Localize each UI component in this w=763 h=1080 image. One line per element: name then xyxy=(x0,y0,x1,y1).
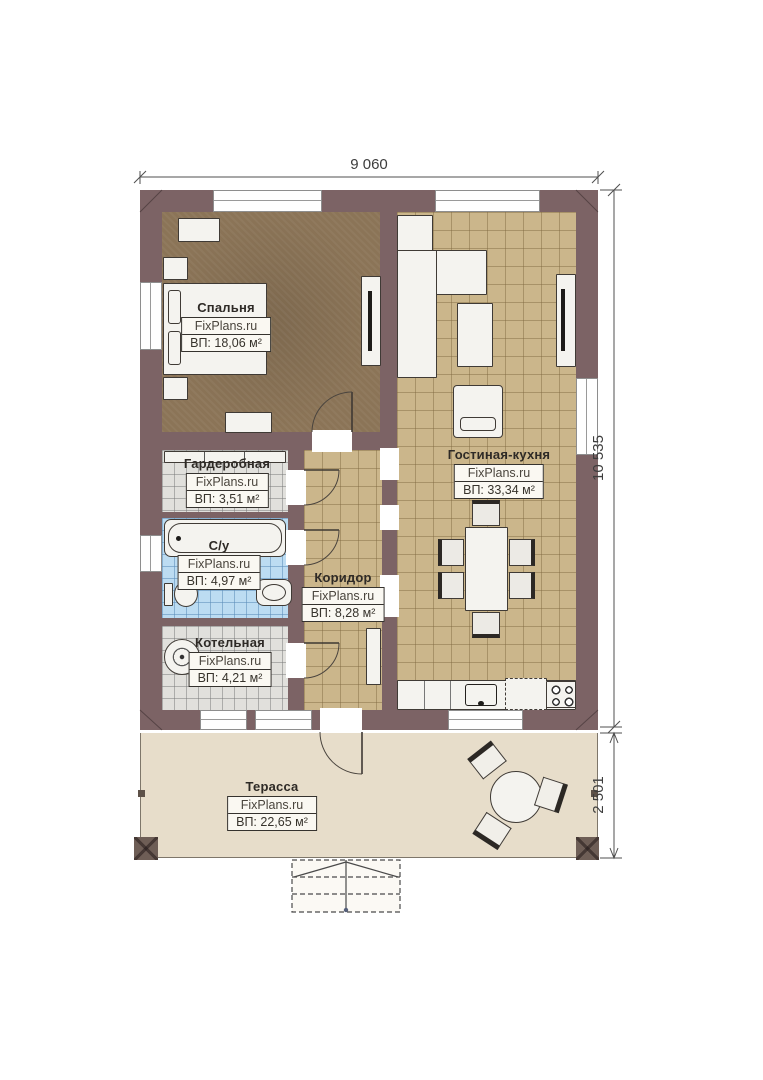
dim-extensions xyxy=(140,171,598,184)
toilet-tank xyxy=(164,583,173,606)
dim-ticks xyxy=(134,171,604,183)
coffee-table xyxy=(457,303,493,367)
label-box: FixPlans.ru ВП: 22,65 м² xyxy=(227,796,317,831)
room-area: ВП: 3,51 м² xyxy=(187,491,268,507)
dining-chair xyxy=(438,572,464,599)
room-name: Гардеробная xyxy=(184,456,270,471)
room-label-boiler: Котельная FixPlans.ru ВП: 4,21 м² xyxy=(189,635,272,687)
dining-table xyxy=(465,527,508,611)
terrace-table xyxy=(490,771,542,823)
brand-watermark: FixPlans.ru xyxy=(179,556,260,573)
room-name: Спальня xyxy=(181,300,271,315)
window-living-top xyxy=(435,190,540,212)
room-area: ВП: 4,21 м² xyxy=(190,670,271,686)
railing-post xyxy=(138,790,145,797)
pillow xyxy=(168,290,181,324)
dim-ticks xyxy=(608,184,620,733)
dimension-right xyxy=(600,184,622,733)
terrace-post-left xyxy=(134,837,158,860)
dresser xyxy=(225,412,272,433)
room-label-bathroom: С/у FixPlans.ru ВП: 4,97 м² xyxy=(178,538,261,590)
bedroom-cabinet xyxy=(178,218,220,242)
room-label-terrace: Терасса FixPlans.ru ВП: 22,65 м² xyxy=(227,779,317,831)
window-living-right xyxy=(576,378,598,455)
brand-watermark: FixPlans.ru xyxy=(455,465,543,482)
room-area: ВП: 18,06 м² xyxy=(182,335,270,351)
passage-living-2 xyxy=(380,505,399,530)
window-bottom-2 xyxy=(255,710,312,730)
terrace-steps xyxy=(292,860,400,912)
brand-watermark: FixPlans.ru xyxy=(303,588,384,605)
terrace-post-right xyxy=(576,837,599,860)
label-box: FixPlans.ru ВП: 33,34 м² xyxy=(454,464,544,499)
brand-watermark: FixPlans.ru xyxy=(182,318,270,335)
nightstand-top xyxy=(163,257,188,280)
dimension-terrace xyxy=(600,733,622,858)
steps-outline xyxy=(292,860,400,912)
dining-chair xyxy=(509,572,535,599)
dining-chair xyxy=(509,539,535,566)
window-bathroom-left xyxy=(140,535,162,572)
dim-arrows xyxy=(610,733,618,858)
window-bedroom-left xyxy=(140,282,162,350)
doorway-bedroom xyxy=(312,430,352,452)
sofa-side-table xyxy=(397,215,433,253)
dimension-top xyxy=(134,171,604,184)
doorway-bathroom xyxy=(286,530,306,565)
sofa-left-section xyxy=(397,250,437,378)
label-box: FixPlans.ru ВП: 18,06 м² xyxy=(181,317,271,352)
tv-icon xyxy=(561,289,565,351)
room-label-corridor: Коридор FixPlans.ru ВП: 8,28 м² xyxy=(302,570,385,622)
corridor-cabinet xyxy=(366,628,381,685)
window-bottom-1 xyxy=(200,710,247,730)
brand-watermark: FixPlans.ru xyxy=(190,653,271,670)
label-box: FixPlans.ru ВП: 8,28 м² xyxy=(302,587,385,622)
dining-chair xyxy=(438,539,464,566)
faucet-icon xyxy=(478,701,484,706)
tv-icon xyxy=(368,291,372,351)
steps-gable-lines xyxy=(294,862,398,877)
doorway-boiler xyxy=(286,643,306,678)
dim-extensions xyxy=(600,190,622,727)
pillow xyxy=(168,331,181,365)
doorway-entrance xyxy=(320,708,362,732)
nightstand-bottom xyxy=(163,377,188,400)
dining-chair xyxy=(472,612,500,638)
doorway-wardrobe xyxy=(286,470,306,505)
room-label-wardrobe: Гардеробная FixPlans.ru ВП: 3,51 м² xyxy=(184,456,270,508)
dim-extensions xyxy=(600,733,622,858)
steps-marker xyxy=(344,908,348,912)
room-label-bedroom: Спальня FixPlans.ru ВП: 18,06 м² xyxy=(181,300,271,352)
window-bedroom-top xyxy=(213,190,322,212)
room-area: ВП: 22,65 м² xyxy=(228,814,316,830)
stove xyxy=(546,681,576,708)
kitchen-wall-cabinet xyxy=(505,678,547,710)
room-name: Котельная xyxy=(189,635,272,650)
label-box: FixPlans.ru ВП: 4,21 м² xyxy=(189,652,272,687)
armchair-cushion xyxy=(460,417,496,431)
room-area: ВП: 4,97 м² xyxy=(179,573,260,589)
room-name: Гостиная-кухня xyxy=(448,447,550,462)
floor-plan-canvas: 9 060 10 535 2 501 Спальня FixPlans.ru В… xyxy=(0,0,763,1080)
tv-unit-living xyxy=(556,274,576,367)
sink-basin xyxy=(262,584,286,601)
room-area: ВП: 8,28 м² xyxy=(303,605,384,621)
window-kitchen-bottom xyxy=(448,710,523,730)
room-name: Терасса xyxy=(227,779,317,794)
dining-chair xyxy=(472,500,500,526)
dimension-top-label: 9 060 xyxy=(350,156,388,173)
room-name: С/у xyxy=(178,538,261,553)
label-box: FixPlans.ru ВП: 3,51 м² xyxy=(186,473,269,508)
brand-watermark: FixPlans.ru xyxy=(228,797,316,814)
railing-post xyxy=(591,790,598,797)
room-name: Коридор xyxy=(302,570,385,585)
passage-living-1 xyxy=(380,448,399,480)
brand-watermark: FixPlans.ru xyxy=(187,474,268,491)
room-area: ВП: 33,34 м² xyxy=(455,482,543,498)
steps-treads xyxy=(292,877,400,894)
room-label-living: Гостиная-кухня FixPlans.ru ВП: 33,34 м² xyxy=(448,447,550,499)
label-box: FixPlans.ru ВП: 4,97 м² xyxy=(178,555,261,590)
